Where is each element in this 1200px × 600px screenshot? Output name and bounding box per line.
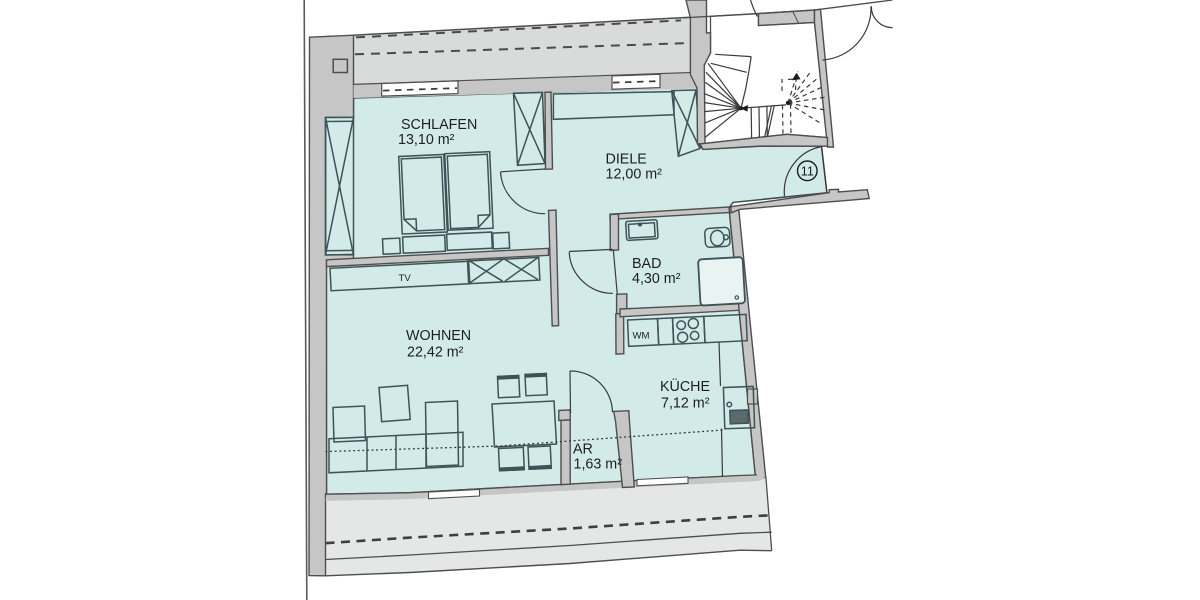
svg-text:12,00 m²: 12,00 m² [606, 167, 663, 183]
svg-text:BAD: BAD [632, 256, 661, 272]
svg-text:1,63 m²: 1,63 m² [574, 457, 623, 473]
svg-text:WOHNEN: WOHNEN [406, 328, 471, 344]
svg-text:TV: TV [399, 273, 412, 284]
svg-text:AR: AR [573, 442, 593, 458]
svg-text:13,10 m²: 13,10 m² [398, 132, 455, 148]
svg-text:DIELE: DIELE [606, 152, 647, 168]
svg-text:4,30 m²: 4,30 m² [632, 271, 681, 287]
svg-text:11: 11 [801, 164, 814, 178]
svg-text:WM: WM [633, 331, 650, 342]
svg-text:7,12 m²: 7,12 m² [661, 396, 710, 412]
svg-text:KÜCHE: KÜCHE [660, 377, 710, 395]
svg-text:22,42 m²: 22,42 m² [407, 345, 464, 361]
svg-text:SCHLAFEN: SCHLAFEN [401, 117, 477, 133]
